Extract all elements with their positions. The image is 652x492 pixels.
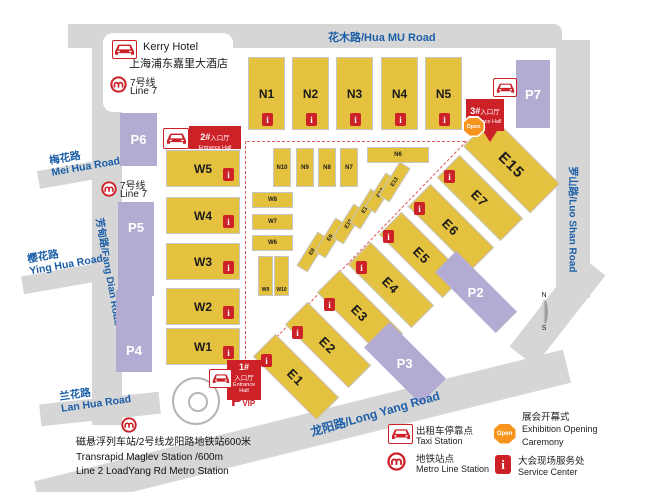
taxi-station-label-cn: 出租车停靠点 — [416, 423, 473, 437]
service-center-label-en: Service Center — [518, 467, 578, 477]
pvip-label: PVIP — [231, 391, 255, 411]
compass: N S — [536, 292, 552, 336]
service-point-icon: i — [350, 113, 361, 126]
maglev-note-line1: 磁悬浮列车站/2号线龙阳路地铁站600米 — [76, 436, 251, 451]
parking-p7: P7 — [516, 60, 550, 128]
service-point-icon: i — [223, 346, 234, 359]
hall-w4: W4i — [166, 197, 240, 234]
parking-p4: P4 — [116, 290, 152, 372]
taxi-icon — [209, 369, 232, 388]
kerry-hotel-name-cn: 上海浦东嘉里大酒店 — [129, 55, 228, 71]
compass-s: S — [536, 325, 552, 332]
maglev-metro-icon — [121, 417, 137, 438]
hall-w5: W5i — [166, 150, 240, 187]
hall-w6: W6 — [252, 235, 293, 251]
taxi-icon — [163, 128, 189, 149]
service-point-icon: i — [306, 113, 317, 126]
taxi-station-legend-icon — [388, 424, 413, 444]
taxi-icon — [112, 40, 137, 59]
service-center-legend-icon: i — [495, 455, 511, 474]
road-label-huamu: 花木路/Hua MU Road — [328, 29, 436, 45]
service-point-icon: i — [395, 113, 406, 126]
service-point-icon: i — [444, 170, 455, 183]
service-point-icon: i — [439, 113, 450, 126]
opening-label-en1: Exhibition Opening — [522, 424, 598, 434]
entrance-hall-2-badge: 2#入口厅 Entrance Hall — [189, 126, 241, 149]
hall-n9: N9 — [296, 148, 314, 187]
compass-needle-icon — [541, 300, 548, 324]
hall-n2: N2i — [292, 57, 329, 130]
line7-en: Line 7 — [130, 86, 157, 97]
entrance-1-number: 1# — [227, 362, 261, 372]
entrance-1-cn: 入口厅 — [227, 372, 261, 382]
metro-station-label-cn: 地铁站点 — [416, 451, 454, 465]
entrance-2-en: Entrance Hall — [189, 145, 241, 151]
maglev-note: 磁悬浮列车站/2号线龙阳路地铁站600米 Transrapid Maglev S… — [76, 436, 251, 480]
line7-label-2-en: Line 7 — [120, 189, 147, 200]
kerry-hotel-card: Kerry Hotel 上海浦东嘉里大酒店 7号线 Line 7 — [103, 33, 233, 112]
hall-n5: N5i — [425, 57, 462, 130]
pvip-p: P — [231, 391, 242, 410]
metro-line7-icon — [110, 76, 127, 98]
taxi-station-label-en: Taxi Station — [416, 436, 463, 446]
service-point-icon: i — [324, 298, 335, 311]
service-point-icon: i — [262, 113, 273, 126]
hall-w3: W3i — [166, 243, 240, 280]
metro-station-legend-icon — [387, 452, 406, 476]
entrance-3-cn: 入口厅 — [480, 109, 500, 116]
hall-n8: N8 — [318, 148, 336, 187]
service-point-icon: i — [292, 326, 303, 339]
opening-label-en2: Caremony — [522, 437, 564, 447]
hall-w7: W7 — [252, 214, 293, 230]
compass-n: N — [536, 292, 552, 299]
metro-line7-icon-2 — [101, 181, 117, 202]
entrance-2-cn: 入口厅 — [210, 135, 230, 142]
hall-n7: N7 — [340, 148, 358, 187]
service-point-icon: i — [356, 261, 367, 274]
expo-center-map: 花木路/Hua MU Road 罗山路/Luo Shan Road 龙阳路/Lo… — [0, 0, 652, 492]
hall-w2: W2i — [166, 288, 240, 325]
service-center-label-cn: 大会现场服务处 — [518, 453, 585, 467]
parking-p6: P6 — [120, 113, 157, 166]
hall-w8: W8 — [252, 192, 293, 208]
road-label-luoshan: 罗山路/Luo Shan Road — [567, 165, 582, 275]
exhibition-opening-legend-icon: Open — [492, 422, 517, 445]
hall-w10: W10 — [274, 256, 289, 296]
hall-w9: W9 — [258, 256, 273, 296]
service-point-icon: i — [414, 202, 425, 215]
parking-p5: P5 — [118, 202, 154, 296]
exhibition-opening-icon: Open — [462, 116, 485, 137]
service-point-icon: i — [223, 168, 234, 181]
metro-station-label-en: Metro Line Station — [416, 464, 489, 474]
taxi-icon — [493, 78, 517, 97]
service-point-icon: i — [223, 306, 234, 319]
maglev-note-line2: Transrapid Maglev Station /600m — [76, 451, 251, 466]
dashed-line-left — [245, 141, 246, 369]
service-point-icon: i — [223, 215, 234, 228]
entrance-2-number: 2# — [200, 132, 210, 142]
roundabout-inner — [188, 392, 208, 412]
hall-n3: N3i — [336, 57, 373, 130]
maglev-note-line3: Line 2 LoadYang Rd Metro Station — [76, 465, 251, 480]
service-point-icon: i — [261, 354, 272, 367]
dashed-line-top — [247, 141, 465, 142]
hall-n10: N10 — [273, 148, 291, 187]
hall-n4: N4i — [381, 57, 418, 130]
hall-n6: N6 — [367, 147, 429, 163]
service-point-icon: i — [223, 261, 234, 274]
kerry-hotel-name-en: Kerry Hotel — [143, 41, 198, 53]
pvip-sub: VIP — [242, 399, 255, 408]
service-point-icon: i — [383, 230, 394, 243]
entrance-3-number: 3# — [470, 106, 480, 116]
hall-n1: N1i — [248, 57, 285, 130]
opening-label-cn: 展会开幕式 — [522, 409, 570, 423]
